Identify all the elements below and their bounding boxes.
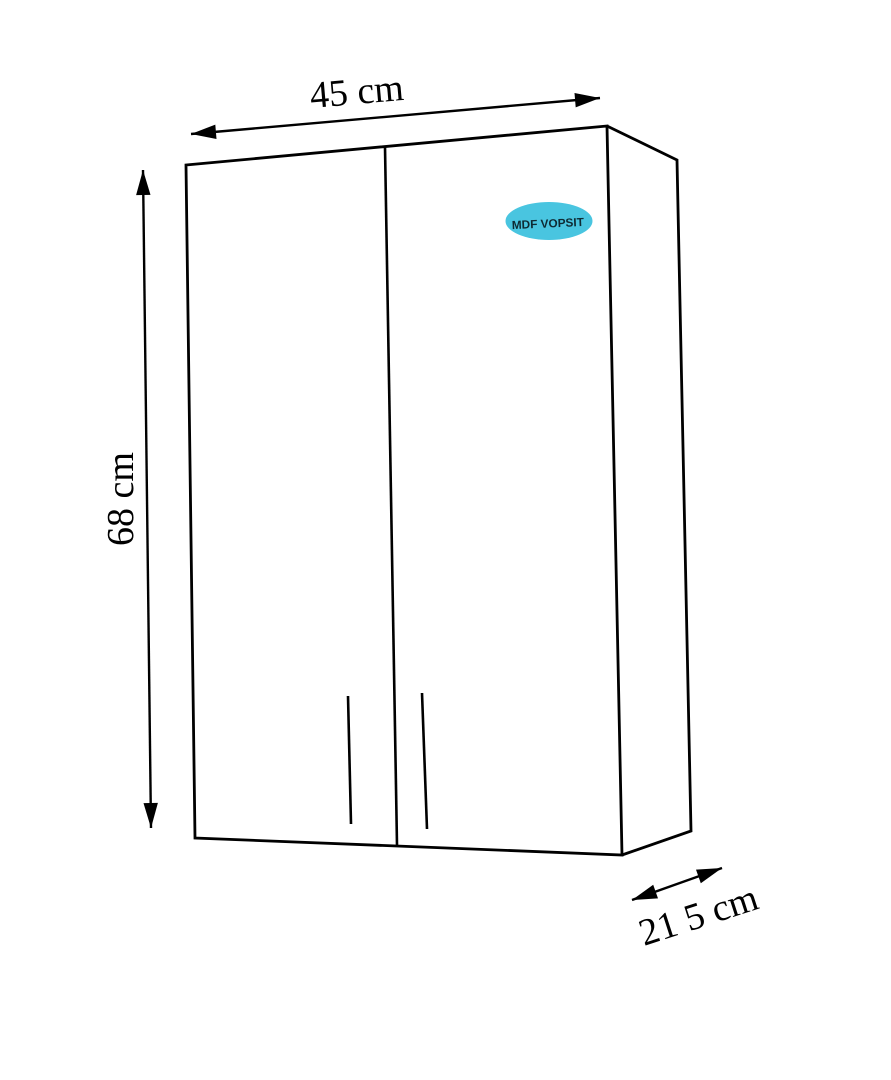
svg-text:68 cm: 68 cm [100,452,142,546]
svg-text:45 cm: 45 cm [308,67,405,117]
